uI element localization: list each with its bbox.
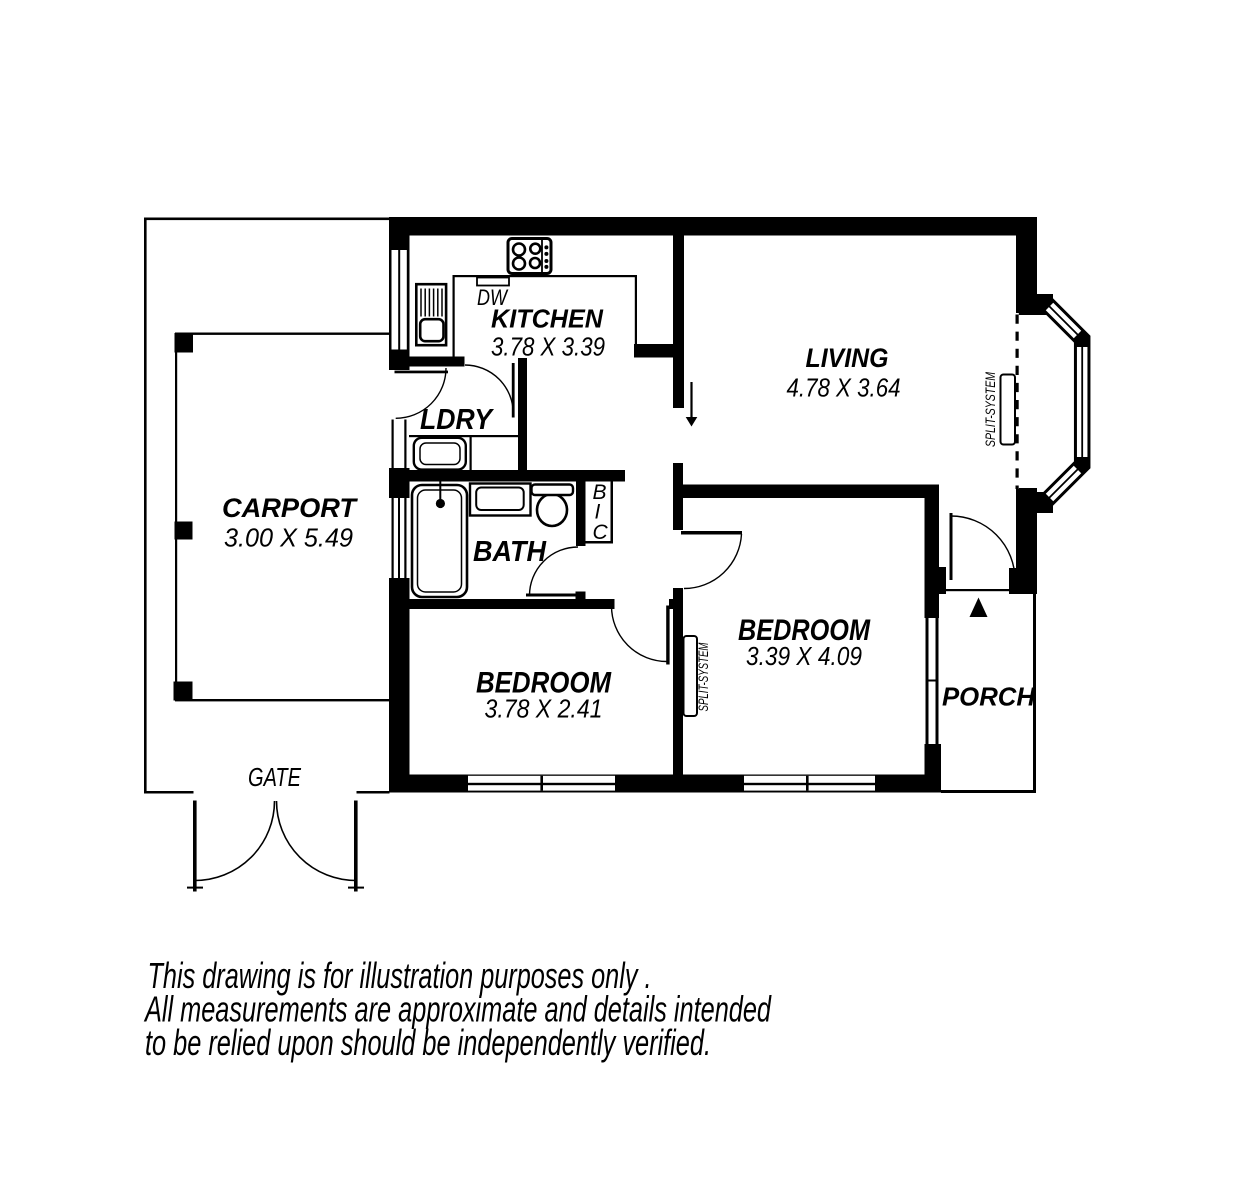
svg-text:3.78 X 2.41: 3.78 X 2.41 (485, 695, 603, 723)
svg-text:GATE: GATE (248, 762, 302, 792)
svg-text:C: C (593, 521, 609, 544)
svg-text:SPLIT-SYSTEM: SPLIT-SYSTEM (982, 372, 998, 447)
svg-text:3.39 X 4.09: 3.39 X 4.09 (746, 643, 862, 671)
svg-text:4.78 X 3.64: 4.78 X 3.64 (787, 374, 901, 402)
svg-text:to be relied upon should be in: to be relied upon should be independentl… (145, 1022, 711, 1063)
svg-text:LDRY: LDRY (420, 404, 494, 436)
svg-text:LIVING: LIVING (806, 343, 889, 373)
svg-text:BATH: BATH (473, 536, 547, 568)
svg-text:KITCHEN: KITCHEN (491, 303, 604, 333)
svg-text:3.00 X 5.49: 3.00 X 5.49 (224, 525, 353, 553)
svg-text:3.78 X 3.39: 3.78 X 3.39 (491, 334, 605, 362)
svg-text:PORCH: PORCH (942, 682, 1036, 712)
svg-text:SPLIT-SYSTEM: SPLIT-SYSTEM (695, 642, 711, 711)
svg-text:CARPORT: CARPORT (222, 493, 359, 523)
